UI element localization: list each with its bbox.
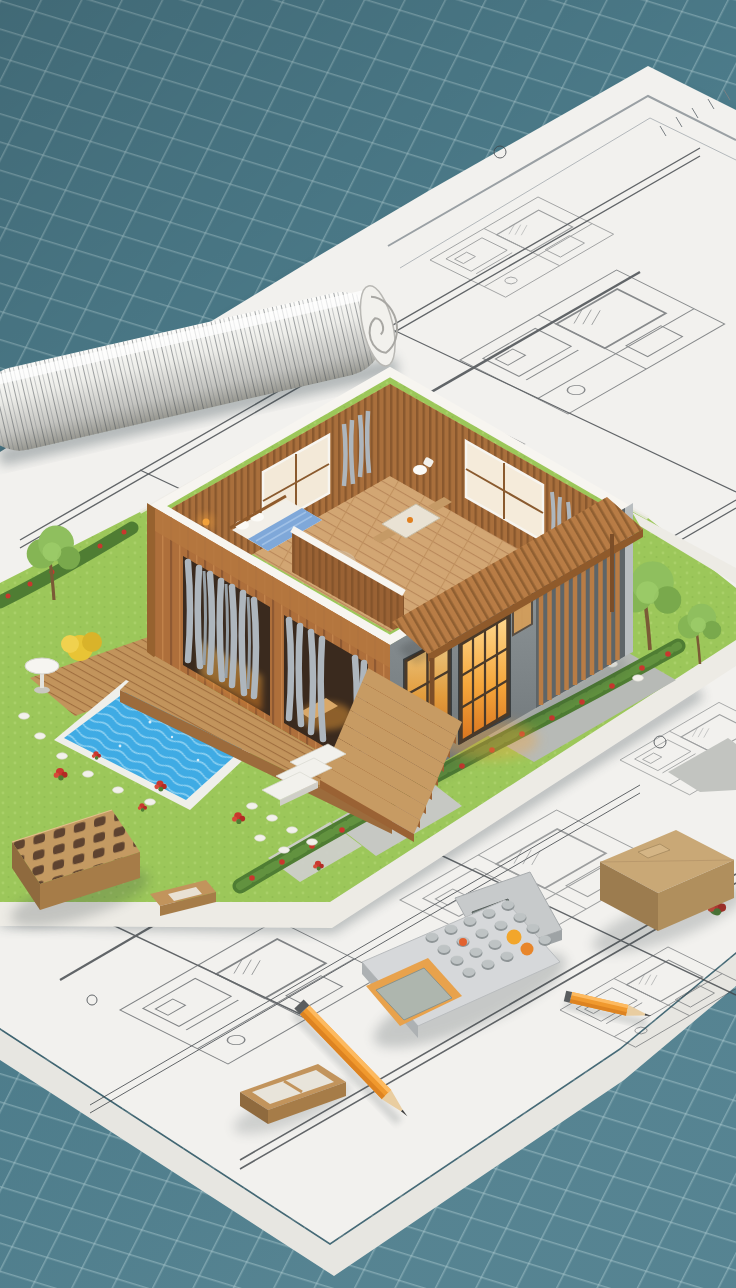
- red-key: [459, 938, 467, 946]
- orange-key-2: [521, 943, 534, 956]
- bedroom-lamp: [203, 519, 210, 526]
- render-canvas: [0, 0, 736, 1288]
- left-facade-return: [147, 503, 155, 658]
- scene-svg: [0, 0, 736, 1288]
- orange-key-1: [507, 930, 522, 945]
- table-bowl: [407, 517, 413, 523]
